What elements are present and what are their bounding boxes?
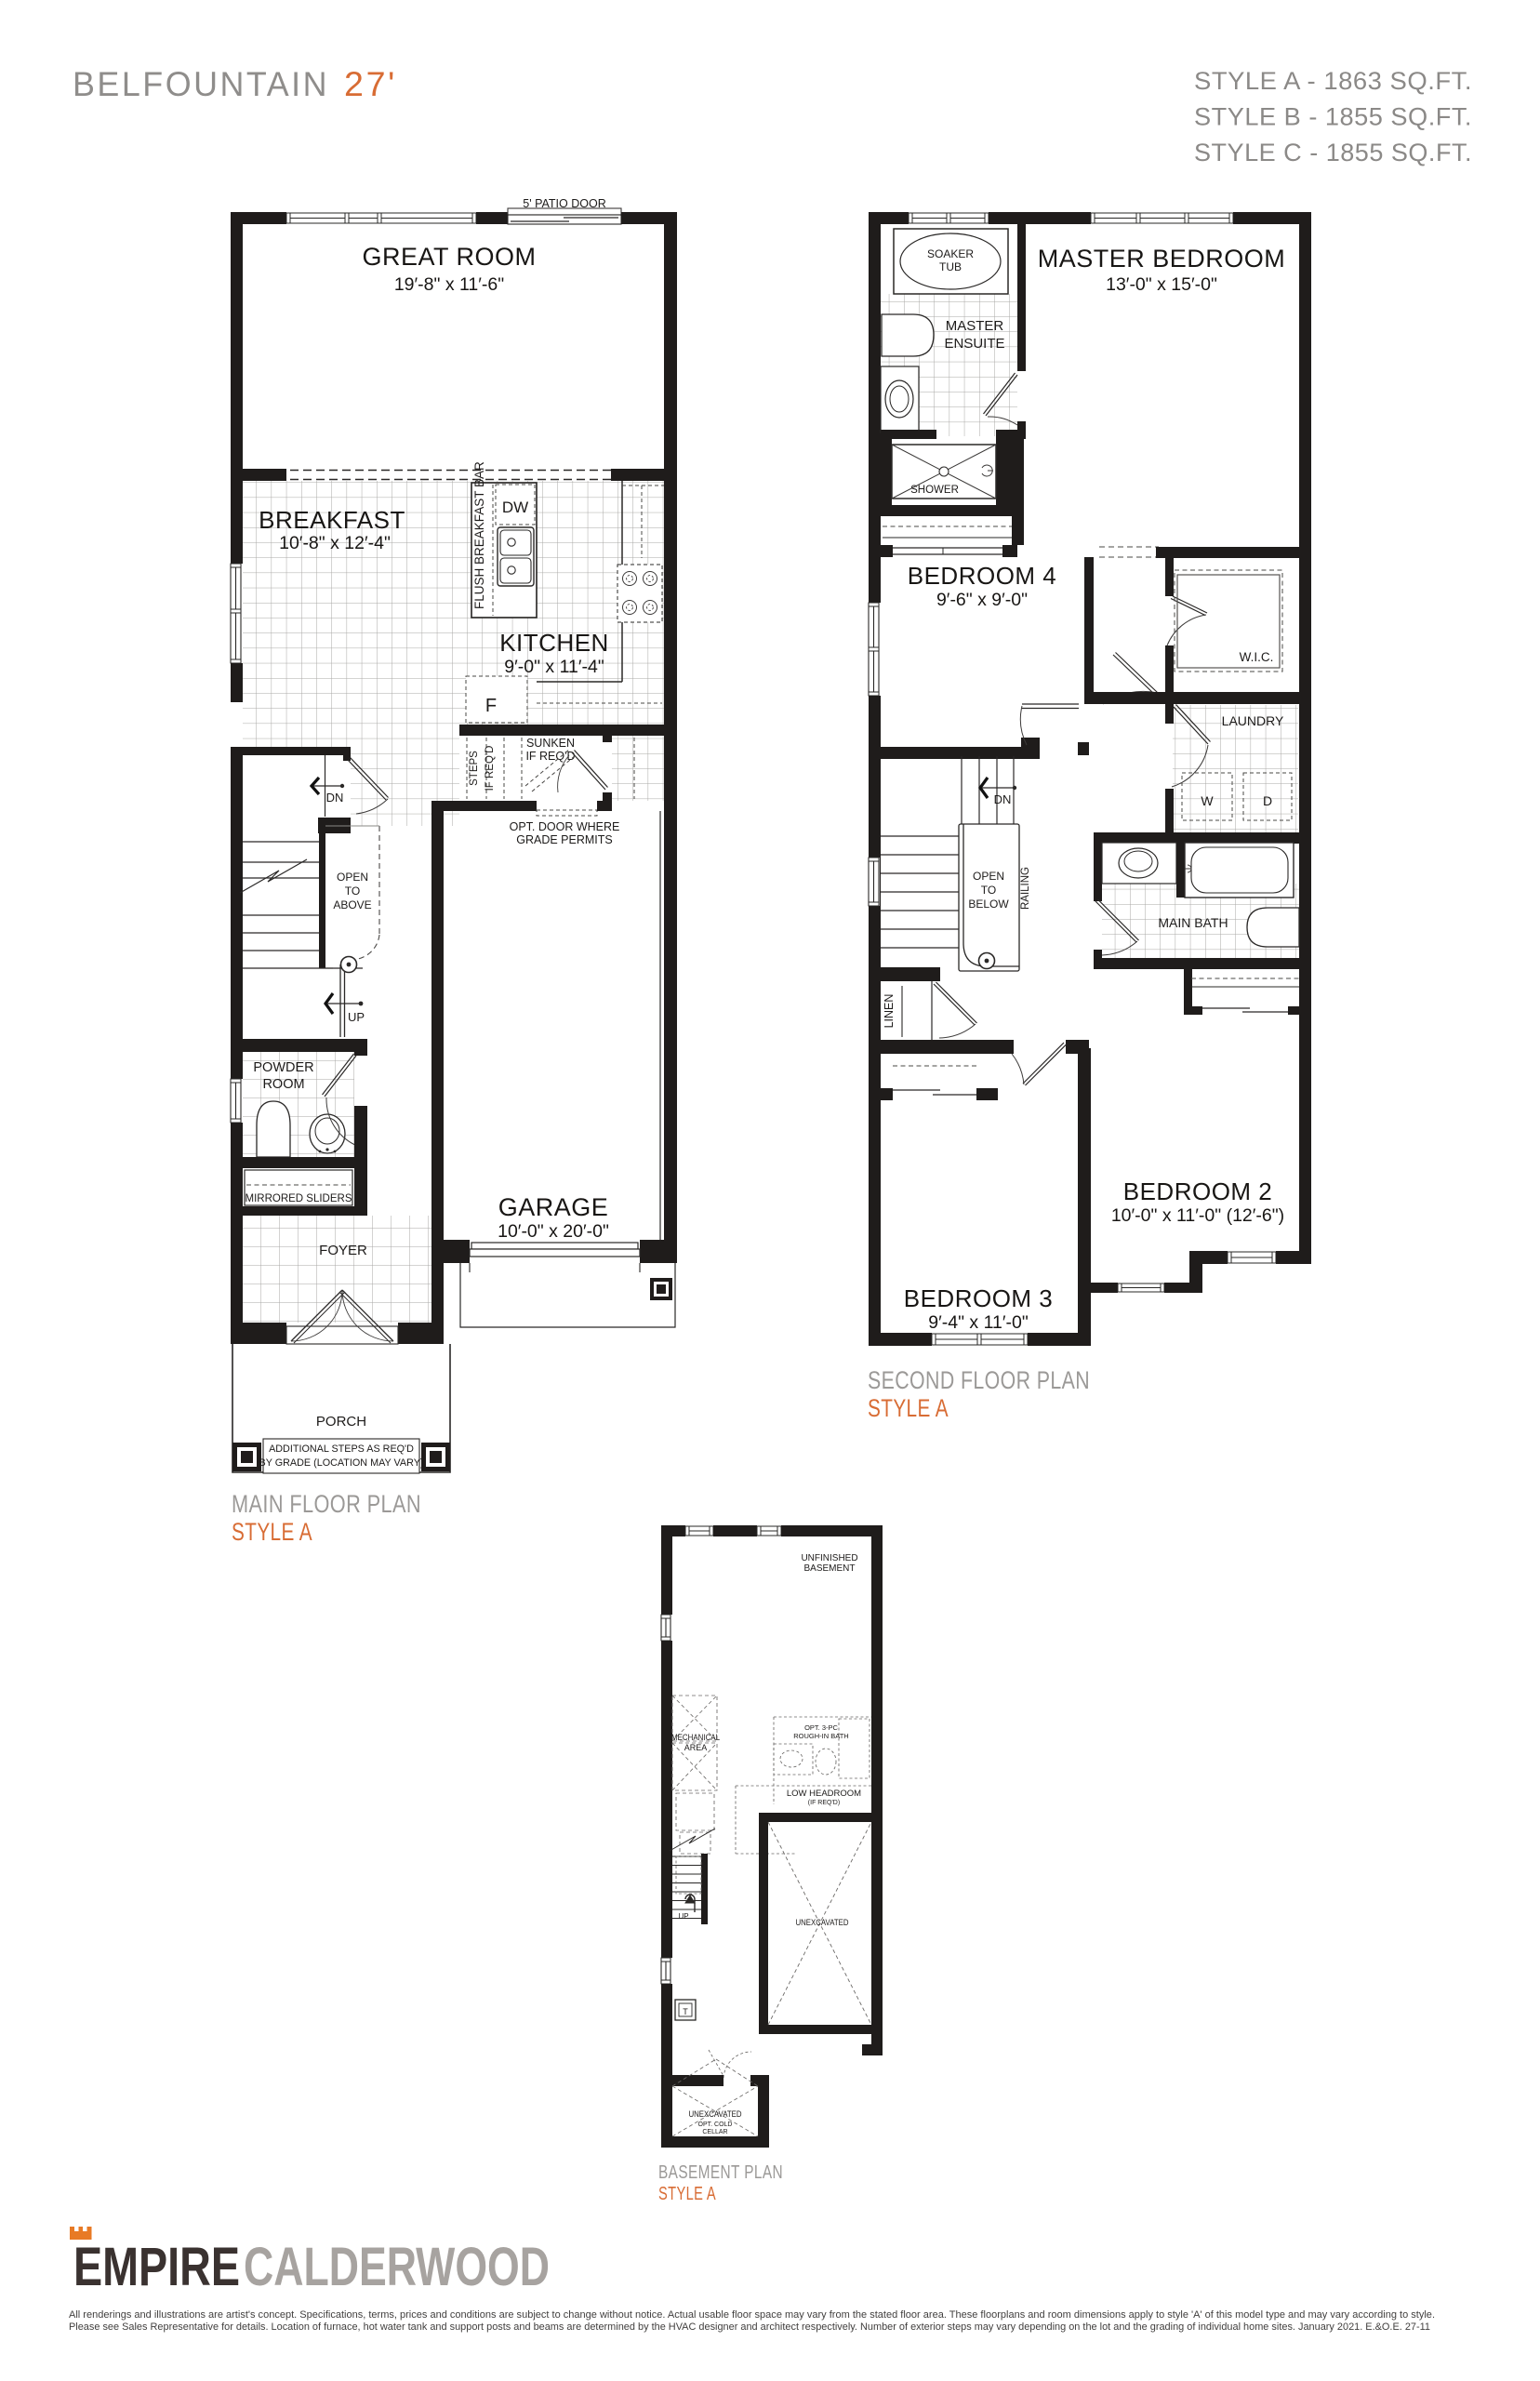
svg-text:AREA: AREA — [684, 1743, 708, 1752]
svg-text:OPT. COLD: OPT. COLD — [698, 2122, 733, 2128]
svg-text:LINEN: LINEN — [883, 994, 896, 1029]
svg-text:BASEMENT PLAN: BASEMENT PLAN — [658, 2162, 783, 2183]
svg-text:DN: DN — [994, 792, 1012, 806]
svg-text:MIRRORED SLIDERS: MIRRORED SLIDERS — [245, 1193, 352, 1204]
svg-text:5' PATIO DOOR: 5' PATIO DOOR — [523, 197, 605, 210]
svg-text:ADDITIONAL STEPS AS REQ'D: ADDITIONAL STEPS AS REQ'D — [269, 1443, 414, 1455]
svg-text:RAILING: RAILING — [1020, 867, 1031, 910]
svg-text:9′-0" x 11′-4": 9′-0" x 11′-4" — [504, 657, 604, 677]
svg-text:STYLE A: STYLE A — [658, 2184, 716, 2204]
svg-text:CELLAR: CELLAR — [702, 2129, 727, 2135]
svg-text:FOYER: FOYER — [319, 1243, 367, 1258]
svg-text:IF REQ'D: IF REQ'D — [485, 746, 496, 791]
svg-text:SHOWER: SHOWER — [910, 485, 959, 496]
svg-text:BEDROOM 3: BEDROOM 3 — [904, 1284, 1054, 1312]
svg-text:STYLE C - 1855 SQ.FT.: STYLE C - 1855 SQ.FT. — [1194, 139, 1472, 166]
svg-text:SUNKEN: SUNKEN — [526, 737, 575, 750]
svg-text:MASTER: MASTER — [946, 318, 1004, 334]
svg-text:ROUGH-IN BATH: ROUGH-IN BATH — [793, 1732, 848, 1740]
svg-text:GRADE PERMITS: GRADE PERMITS — [516, 833, 613, 846]
svg-text:TO: TO — [345, 885, 360, 898]
svg-text:13′-0" x 15′-0": 13′-0" x 15′-0" — [1106, 274, 1217, 295]
svg-text:MASTER BEDROOM: MASTER BEDROOM — [1038, 245, 1286, 273]
svg-text:BELOW: BELOW — [968, 898, 1009, 911]
svg-text:MAIN FLOOR PLAN: MAIN FLOOR PLAN — [232, 1490, 421, 1518]
svg-text:W: W — [1201, 793, 1214, 808]
svg-text:STYLE B - 1855 SQ.FT.: STYLE B - 1855 SQ.FT. — [1194, 103, 1472, 131]
svg-text:LAUNDRY: LAUNDRY — [1222, 713, 1284, 728]
svg-text:OPT. 3-PC: OPT. 3-PC — [804, 1723, 838, 1732]
svg-text:CALDERWOOD: CALDERWOOD — [244, 2237, 550, 2297]
svg-text:STEPS: STEPS — [469, 751, 480, 786]
svg-text:10′-0" x 11′-0" (12′-6"): 10′-0" x 11′-0" (12′-6") — [1111, 1205, 1284, 1226]
svg-text:19′-8" x 11′-6": 19′-8" x 11′-6" — [394, 274, 504, 295]
svg-text:All renderings and illustratio: All renderings and illustrations are art… — [69, 2309, 1435, 2321]
svg-text:UP: UP — [678, 1912, 688, 1921]
svg-text:OPT. DOOR WHERE: OPT. DOOR WHERE — [510, 820, 620, 833]
svg-text:BEDROOM 2: BEDROOM 2 — [1123, 1177, 1273, 1205]
svg-text:T: T — [683, 2007, 688, 2016]
svg-text:9′-6" x 9′-0": 9′-6" x 9′-0" — [936, 590, 1028, 610]
svg-text:BASEMENT: BASEMENT — [803, 1563, 855, 1574]
svg-text:SOAKER: SOAKER — [927, 247, 974, 260]
svg-text:Please see Sales Representativ: Please see Sales Representative for deta… — [69, 2321, 1430, 2333]
svg-text:LOW HEADROOM: LOW HEADROOM — [787, 1789, 861, 1799]
svg-text:STYLE A: STYLE A — [868, 1394, 949, 1422]
svg-text:OPEN: OPEN — [973, 870, 1004, 883]
svg-text:BELFOUNTAIN: BELFOUNTAIN — [73, 65, 329, 103]
svg-text:MAIN BATH: MAIN BATH — [1158, 915, 1228, 930]
svg-text:ABOVE: ABOVE — [333, 898, 371, 911]
svg-text:W.I.C.: W.I.C. — [1240, 650, 1274, 664]
svg-text:POWDER: POWDER — [253, 1060, 313, 1075]
svg-text:UNEXCAVATED: UNEXCAVATED — [796, 1918, 849, 1928]
svg-text:D: D — [1263, 793, 1272, 808]
svg-text:27': 27' — [344, 65, 397, 103]
svg-text:IF REQ'D: IF REQ'D — [525, 750, 575, 763]
svg-text:BEDROOM 4: BEDROOM 4 — [908, 562, 1057, 590]
svg-text:MECHANICAL: MECHANICAL — [671, 1733, 720, 1742]
svg-text:KITCHEN: KITCHEN — [499, 629, 609, 657]
svg-text:PORCH: PORCH — [316, 1414, 366, 1430]
svg-text:9′-4" x 11′-0": 9′-4" x 11′-0" — [928, 1312, 1029, 1333]
svg-text:TO: TO — [981, 884, 996, 897]
svg-text:EMPIRE: EMPIRE — [73, 2237, 240, 2297]
svg-text:BY GRADE (LOCATION MAY VARY): BY GRADE (LOCATION MAY VARY) — [259, 1457, 424, 1469]
svg-text:10′-0" x 20′-0": 10′-0" x 20′-0" — [498, 1221, 609, 1242]
svg-text:DN: DN — [326, 791, 344, 805]
svg-text:10′-8" x 12′-4": 10′-8" x 12′-4" — [279, 533, 391, 553]
svg-text:(IF REQ'D): (IF REQ'D) — [808, 1800, 840, 1806]
svg-text:UP: UP — [348, 1010, 365, 1024]
svg-text:GREAT ROOM: GREAT ROOM — [362, 243, 536, 271]
svg-text:GARAGE: GARAGE — [498, 1193, 609, 1221]
svg-text:TUB: TUB — [939, 260, 962, 273]
svg-text:ROOM: ROOM — [262, 1077, 304, 1092]
svg-text:F: F — [485, 696, 497, 716]
svg-text:STYLE A - 1863 SQ.FT.: STYLE A - 1863 SQ.FT. — [1194, 67, 1472, 95]
svg-text:BREAKFAST: BREAKFAST — [259, 506, 405, 534]
svg-text:ENSUITE: ENSUITE — [944, 336, 1004, 352]
svg-text:UNFINISHED: UNFINISHED — [801, 1553, 857, 1563]
svg-text:UNEXCAVATED: UNEXCAVATED — [689, 2109, 742, 2120]
svg-text:DW: DW — [502, 499, 528, 516]
svg-text:STYLE A: STYLE A — [232, 1518, 312, 1546]
svg-text:SECOND FLOOR PLAN: SECOND FLOOR PLAN — [868, 1366, 1090, 1394]
svg-text:FLUSH BREAKFAST BAR: FLUSH BREAKFAST BAR — [472, 461, 486, 609]
svg-text:OPEN: OPEN — [337, 871, 368, 884]
